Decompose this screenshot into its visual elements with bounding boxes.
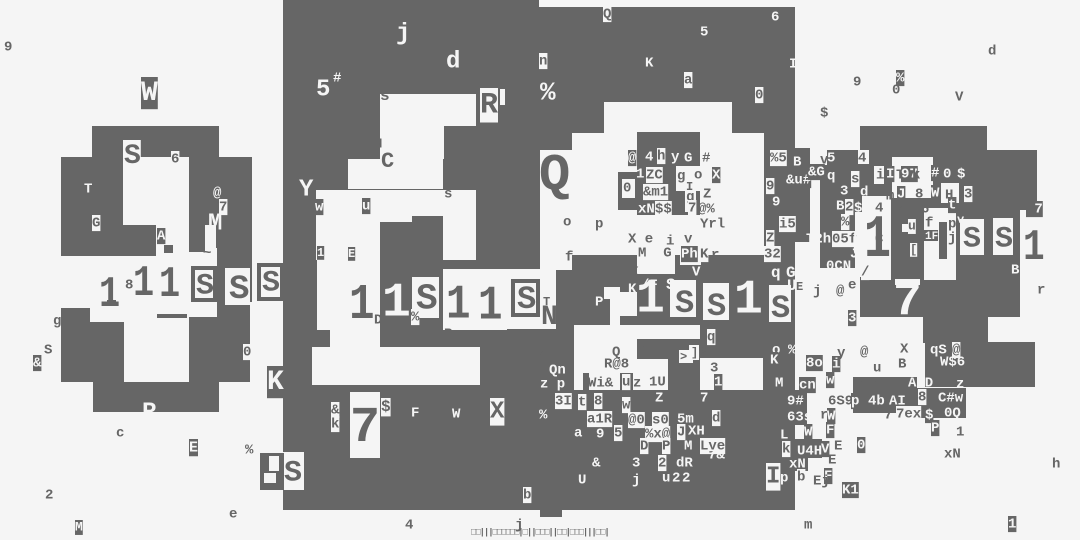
svg-text:S: S [284, 457, 302, 491]
svg-text:xN: xN [944, 446, 961, 462]
svg-text:p: p [851, 393, 859, 409]
svg-text:d: d [860, 184, 868, 200]
svg-text:6: 6 [771, 9, 779, 25]
svg-text:xN: xN [638, 201, 655, 217]
svg-text:p: p [780, 470, 788, 486]
svg-text:t: t [578, 394, 586, 410]
svg-text:%5: %5 [770, 150, 787, 166]
svg-text:$: $ [820, 105, 828, 121]
svg-text:0: 0 [243, 344, 251, 360]
svg-text:u: u [908, 219, 916, 234]
svg-text:U: U [853, 243, 861, 259]
svg-text:E: E [796, 280, 803, 294]
svg-text:k: k [801, 246, 809, 262]
svg-text:/F: /F [641, 277, 658, 293]
svg-text:F: F [826, 422, 834, 438]
svg-text:V: V [955, 89, 964, 105]
svg-text:c: c [116, 425, 124, 441]
svg-text:D: D [374, 312, 382, 328]
svg-text:XH: XH [688, 423, 705, 439]
svg-text:@: @ [628, 150, 637, 166]
svg-text:C#w: C#w [938, 390, 964, 406]
svg-text:$$: $$ [655, 201, 672, 217]
svg-text:1: 1 [133, 259, 154, 309]
svg-text:1: 1 [382, 276, 411, 330]
svg-text:4: 4 [858, 150, 866, 166]
svg-text:M: M [684, 438, 692, 454]
svg-text:m: m [886, 188, 894, 204]
svg-text:Ph: Ph [681, 246, 698, 262]
svg-text:j: j [813, 283, 821, 299]
svg-text:g: g [802, 265, 812, 283]
svg-text:7: 7 [884, 407, 892, 423]
svg-text:r: r [1037, 282, 1045, 298]
svg-text:Wi&: Wi& [588, 375, 614, 391]
svg-text:A: A [157, 228, 166, 244]
svg-text:3: 3 [848, 310, 856, 326]
svg-text:0: 0 [943, 166, 951, 182]
svg-text:B: B [898, 356, 907, 372]
svg-text:S: S [517, 281, 536, 318]
svg-text:%: % [245, 442, 254, 458]
svg-text:2: 2 [672, 470, 680, 486]
svg-text:Q: Q [603, 6, 611, 22]
svg-text:@: @ [860, 344, 869, 360]
svg-text:w: w [826, 372, 835, 388]
svg-text:Z: Z [655, 390, 663, 406]
svg-text:j: j [632, 472, 640, 488]
svg-text:1: 1 [714, 374, 722, 390]
svg-text:9#: 9# [787, 393, 804, 409]
svg-text:Q: Q [539, 147, 570, 206]
svg-text:q: q [827, 168, 835, 184]
svg-text:v: v [957, 213, 964, 227]
svg-text:q: q [771, 264, 781, 282]
svg-text:0: 0 [755, 87, 763, 103]
svg-text:Z: Z [703, 186, 711, 202]
svg-text:$: $ [854, 200, 862, 216]
svg-text:S: S [771, 290, 790, 327]
svg-text:S: S [995, 223, 1013, 257]
svg-text:8o: 8o [806, 355, 823, 371]
svg-text:W: W [452, 406, 461, 422]
svg-text:T2h: T2h [806, 231, 831, 247]
svg-text:i5: i5 [779, 216, 796, 232]
svg-text:s: s [380, 87, 390, 105]
svg-text:d: d [988, 43, 996, 59]
svg-text:u: u [873, 360, 881, 376]
svg-text:&m1: &m1 [643, 184, 668, 200]
svg-text:M: M [775, 375, 783, 391]
svg-text:U: U [578, 472, 586, 488]
svg-text:m: m [804, 517, 812, 533]
svg-text:e: e [229, 506, 237, 522]
svg-text:□□|||□□□□□□|□||□□□||□□|□□□|||□: □□|||□□□□□□|□||□□□||□□|□□□|||□□| [471, 527, 609, 537]
svg-text:S: S [675, 285, 694, 322]
svg-text:z p: z p [540, 376, 565, 392]
svg-text:J: J [897, 186, 905, 202]
svg-text:j: j [948, 230, 956, 246]
svg-text:C: C [875, 231, 884, 247]
svg-text:r: r [711, 247, 719, 263]
svg-text:r C: r C [858, 376, 884, 392]
svg-text:7: 7 [350, 400, 380, 457]
svg-text:1: 1 [1023, 224, 1045, 273]
svg-text:g: g [677, 168, 685, 184]
svg-text:W: W [804, 424, 813, 440]
svg-text:d: d [446, 49, 460, 76]
svg-text:#: # [931, 165, 939, 181]
svg-text:5: 5 [316, 77, 330, 104]
svg-text:M G: M G [638, 245, 672, 261]
svg-text:3: 3 [840, 183, 848, 199]
svg-text:R@8: R@8 [604, 356, 629, 372]
svg-text:Ej: Ej [813, 473, 830, 489]
svg-text:[: [ [910, 243, 917, 257]
svg-text:4: 4 [405, 517, 413, 533]
svg-text:K: K [628, 281, 637, 297]
svg-text:M: M [208, 211, 222, 238]
svg-text:f: f [925, 215, 933, 231]
svg-text:a: a [684, 72, 693, 88]
svg-text:$: $ [957, 166, 965, 182]
svg-text:%: % [699, 344, 708, 360]
svg-text:j: j [396, 21, 410, 48]
svg-text:5: 5 [614, 425, 622, 441]
svg-text:S: S [229, 271, 249, 309]
svg-text:e: e [848, 277, 856, 293]
svg-text:R: R [444, 326, 453, 342]
svg-text:2: 2 [45, 487, 53, 503]
svg-text:a1R: a1R [587, 411, 613, 427]
svg-text:6: 6 [171, 151, 179, 167]
svg-text:k: k [220, 247, 228, 263]
svg-text:d: d [712, 410, 720, 426]
svg-text:#: # [333, 70, 341, 86]
svg-text:1: 1 [317, 246, 324, 260]
svg-text:%: % [540, 77, 556, 107]
svg-text:3I: 3I [555, 393, 572, 409]
svg-text:7&: 7& [708, 447, 725, 463]
svg-text:N: N [541, 302, 558, 333]
svg-text:E: E [828, 452, 836, 468]
svg-text:k: k [782, 441, 790, 457]
svg-text:n: n [539, 53, 547, 69]
svg-text:F: F [411, 405, 419, 421]
svg-text:#: # [702, 150, 710, 166]
svg-text:7ex: 7ex [896, 406, 922, 422]
svg-text:4 n: 4 n [540, 346, 565, 362]
svg-text:&G: &G [808, 164, 825, 180]
svg-text:7: 7 [700, 390, 708, 406]
svg-text:1: 1 [1008, 516, 1016, 532]
svg-text:R: R [480, 89, 498, 123]
svg-text:cn: cn [799, 377, 816, 393]
svg-text:T: T [84, 181, 92, 197]
svg-text:U4H: U4H [797, 443, 822, 459]
svg-text:%: % [841, 214, 850, 230]
svg-text:C: C [381, 149, 394, 174]
svg-text:%: % [411, 309, 420, 325]
svg-text:8: 8 [915, 186, 923, 202]
svg-text:0: 0 [857, 437, 865, 453]
svg-text:S: S [44, 342, 52, 358]
svg-text:i: i [876, 167, 884, 183]
svg-text:@%: @% [698, 201, 715, 217]
svg-text:2: 2 [682, 470, 690, 486]
svg-text:1: 1 [446, 279, 470, 333]
svg-text:1: 1 [956, 424, 964, 440]
svg-text:>: > [680, 350, 687, 364]
svg-text:8: 8 [125, 277, 133, 293]
svg-text:63s: 63s [787, 409, 812, 425]
svg-text:t: t [948, 197, 956, 213]
svg-text:@: @ [836, 283, 845, 299]
svg-text:6S9: 6S9 [828, 393, 853, 409]
svg-text:1F: 1F [925, 231, 938, 243]
svg-text:%: % [896, 70, 905, 86]
svg-text:8: 8 [594, 393, 602, 409]
svg-text:W: W [931, 185, 940, 201]
svg-text:7: 7 [893, 275, 922, 329]
svg-text:2: 2 [845, 199, 853, 215]
svg-text:f: f [565, 249, 573, 265]
svg-text:B: B [793, 154, 802, 170]
svg-text:K1: K1 [842, 482, 859, 498]
svg-text:B: B [836, 198, 845, 214]
svg-text:9: 9 [766, 178, 774, 194]
svg-text:q: q [707, 329, 715, 345]
svg-text:b: b [523, 487, 531, 503]
svg-text:9: 9 [853, 74, 861, 90]
svg-text:ZC: ZC [646, 167, 663, 183]
svg-text:S: S [963, 223, 981, 257]
svg-text:k: k [331, 416, 339, 432]
svg-text:s: s [444, 186, 452, 202]
svg-text:dR: dR [676, 455, 693, 471]
svg-text:~: ~ [203, 245, 211, 261]
svg-text:X: X [490, 399, 505, 426]
svg-text:S: S [262, 267, 280, 301]
svg-text:a: a [574, 425, 583, 441]
svg-text:X: X [900, 341, 909, 357]
svg-text:7: 7 [688, 200, 696, 216]
svg-text:P: P [662, 438, 670, 454]
svg-text:M: M [75, 520, 83, 535]
svg-text:&: & [33, 355, 42, 371]
svg-text:L: L [803, 325, 811, 341]
svg-text:R: R [142, 400, 157, 427]
svg-text:9: 9 [772, 194, 780, 210]
svg-text:P: P [595, 294, 603, 310]
svg-text:4: 4 [899, 201, 907, 217]
svg-text:0: 0 [623, 180, 631, 196]
svg-text:Z: Z [766, 230, 774, 246]
svg-text:g: g [53, 313, 61, 329]
svg-text:W$6: W$6 [940, 354, 965, 370]
svg-text:I: I [789, 56, 797, 72]
svg-text:2: 2 [658, 455, 666, 471]
svg-text:K: K [770, 352, 779, 368]
svg-text:0: 0 [638, 341, 646, 357]
svg-text:w: w [622, 397, 631, 413]
svg-text:S: S [196, 270, 214, 304]
svg-text:o: o [694, 167, 702, 183]
svg-text:1: 1 [159, 260, 180, 310]
svg-text:1: 1 [734, 273, 763, 327]
svg-text:K: K [645, 55, 654, 71]
svg-text:D: D [640, 438, 648, 454]
svg-text:u: u [362, 198, 370, 214]
svg-text:1: 1 [636, 166, 644, 182]
svg-text:v: v [684, 231, 693, 247]
svg-text:h: h [1052, 456, 1060, 472]
svg-text:G: G [92, 215, 100, 231]
svg-text:3: 3 [964, 186, 972, 202]
svg-text:3: 3 [632, 455, 640, 471]
svg-text:1: 1 [99, 270, 120, 320]
svg-text:z: z [633, 375, 641, 391]
svg-text:5: 5 [700, 24, 708, 40]
svg-text:0Q: 0Q [944, 405, 961, 421]
svg-text:w: w [315, 199, 324, 215]
svg-text:Y: Y [299, 177, 314, 204]
svg-text:I: I [886, 166, 894, 182]
svg-text:y: y [671, 149, 680, 165]
svg-text:u: u [662, 470, 670, 486]
svg-text:%: % [539, 407, 548, 423]
svg-text:Yrl: Yrl [700, 216, 725, 232]
svg-text:4b: 4b [868, 393, 885, 409]
svg-text:s: s [851, 171, 859, 187]
svg-text:8: 8 [918, 389, 926, 405]
svg-text:1: 1 [478, 280, 502, 334]
svg-text:W: W [141, 78, 158, 109]
svg-text:P: P [931, 420, 939, 436]
svg-text:i: i [832, 356, 840, 372]
svg-text:k: k [912, 167, 920, 183]
svg-text:K: K [267, 367, 284, 398]
svg-text:5: 5 [827, 150, 835, 166]
svg-text:9: 9 [4, 39, 12, 55]
svg-text:1U: 1U [649, 374, 666, 390]
svg-text:K: K [700, 246, 709, 262]
svg-text:o: o [563, 214, 571, 230]
svg-text:S: S [666, 276, 676, 294]
svg-text:]: ] [691, 346, 698, 360]
svg-text:G: G [684, 150, 692, 166]
svg-text:@0: @0 [628, 412, 645, 428]
svg-text:S: S [707, 288, 726, 325]
svg-text:E: E [348, 247, 355, 261]
svg-text:0CN: 0CN [826, 258, 851, 274]
svg-text:h: h [657, 148, 665, 164]
svg-text:9: 9 [596, 426, 604, 442]
svg-text:7: 7 [1026, 201, 1043, 217]
svg-text:1: 1 [349, 276, 375, 333]
svg-text:V: V [692, 264, 701, 280]
svg-text:E: E [189, 439, 198, 456]
svg-text:4: 4 [645, 149, 653, 165]
svg-text:u: u [622, 374, 630, 390]
svg-text:S: S [124, 141, 141, 172]
svg-text:L: L [786, 355, 794, 371]
svg-text:B: B [1011, 262, 1020, 278]
svg-text:&: & [592, 455, 601, 471]
svg-text:p: p [595, 216, 603, 232]
svg-text:X: X [712, 167, 721, 183]
svg-text:I: I [766, 464, 780, 491]
svg-text:$: $ [381, 398, 391, 416]
svg-text:32: 32 [764, 246, 781, 262]
